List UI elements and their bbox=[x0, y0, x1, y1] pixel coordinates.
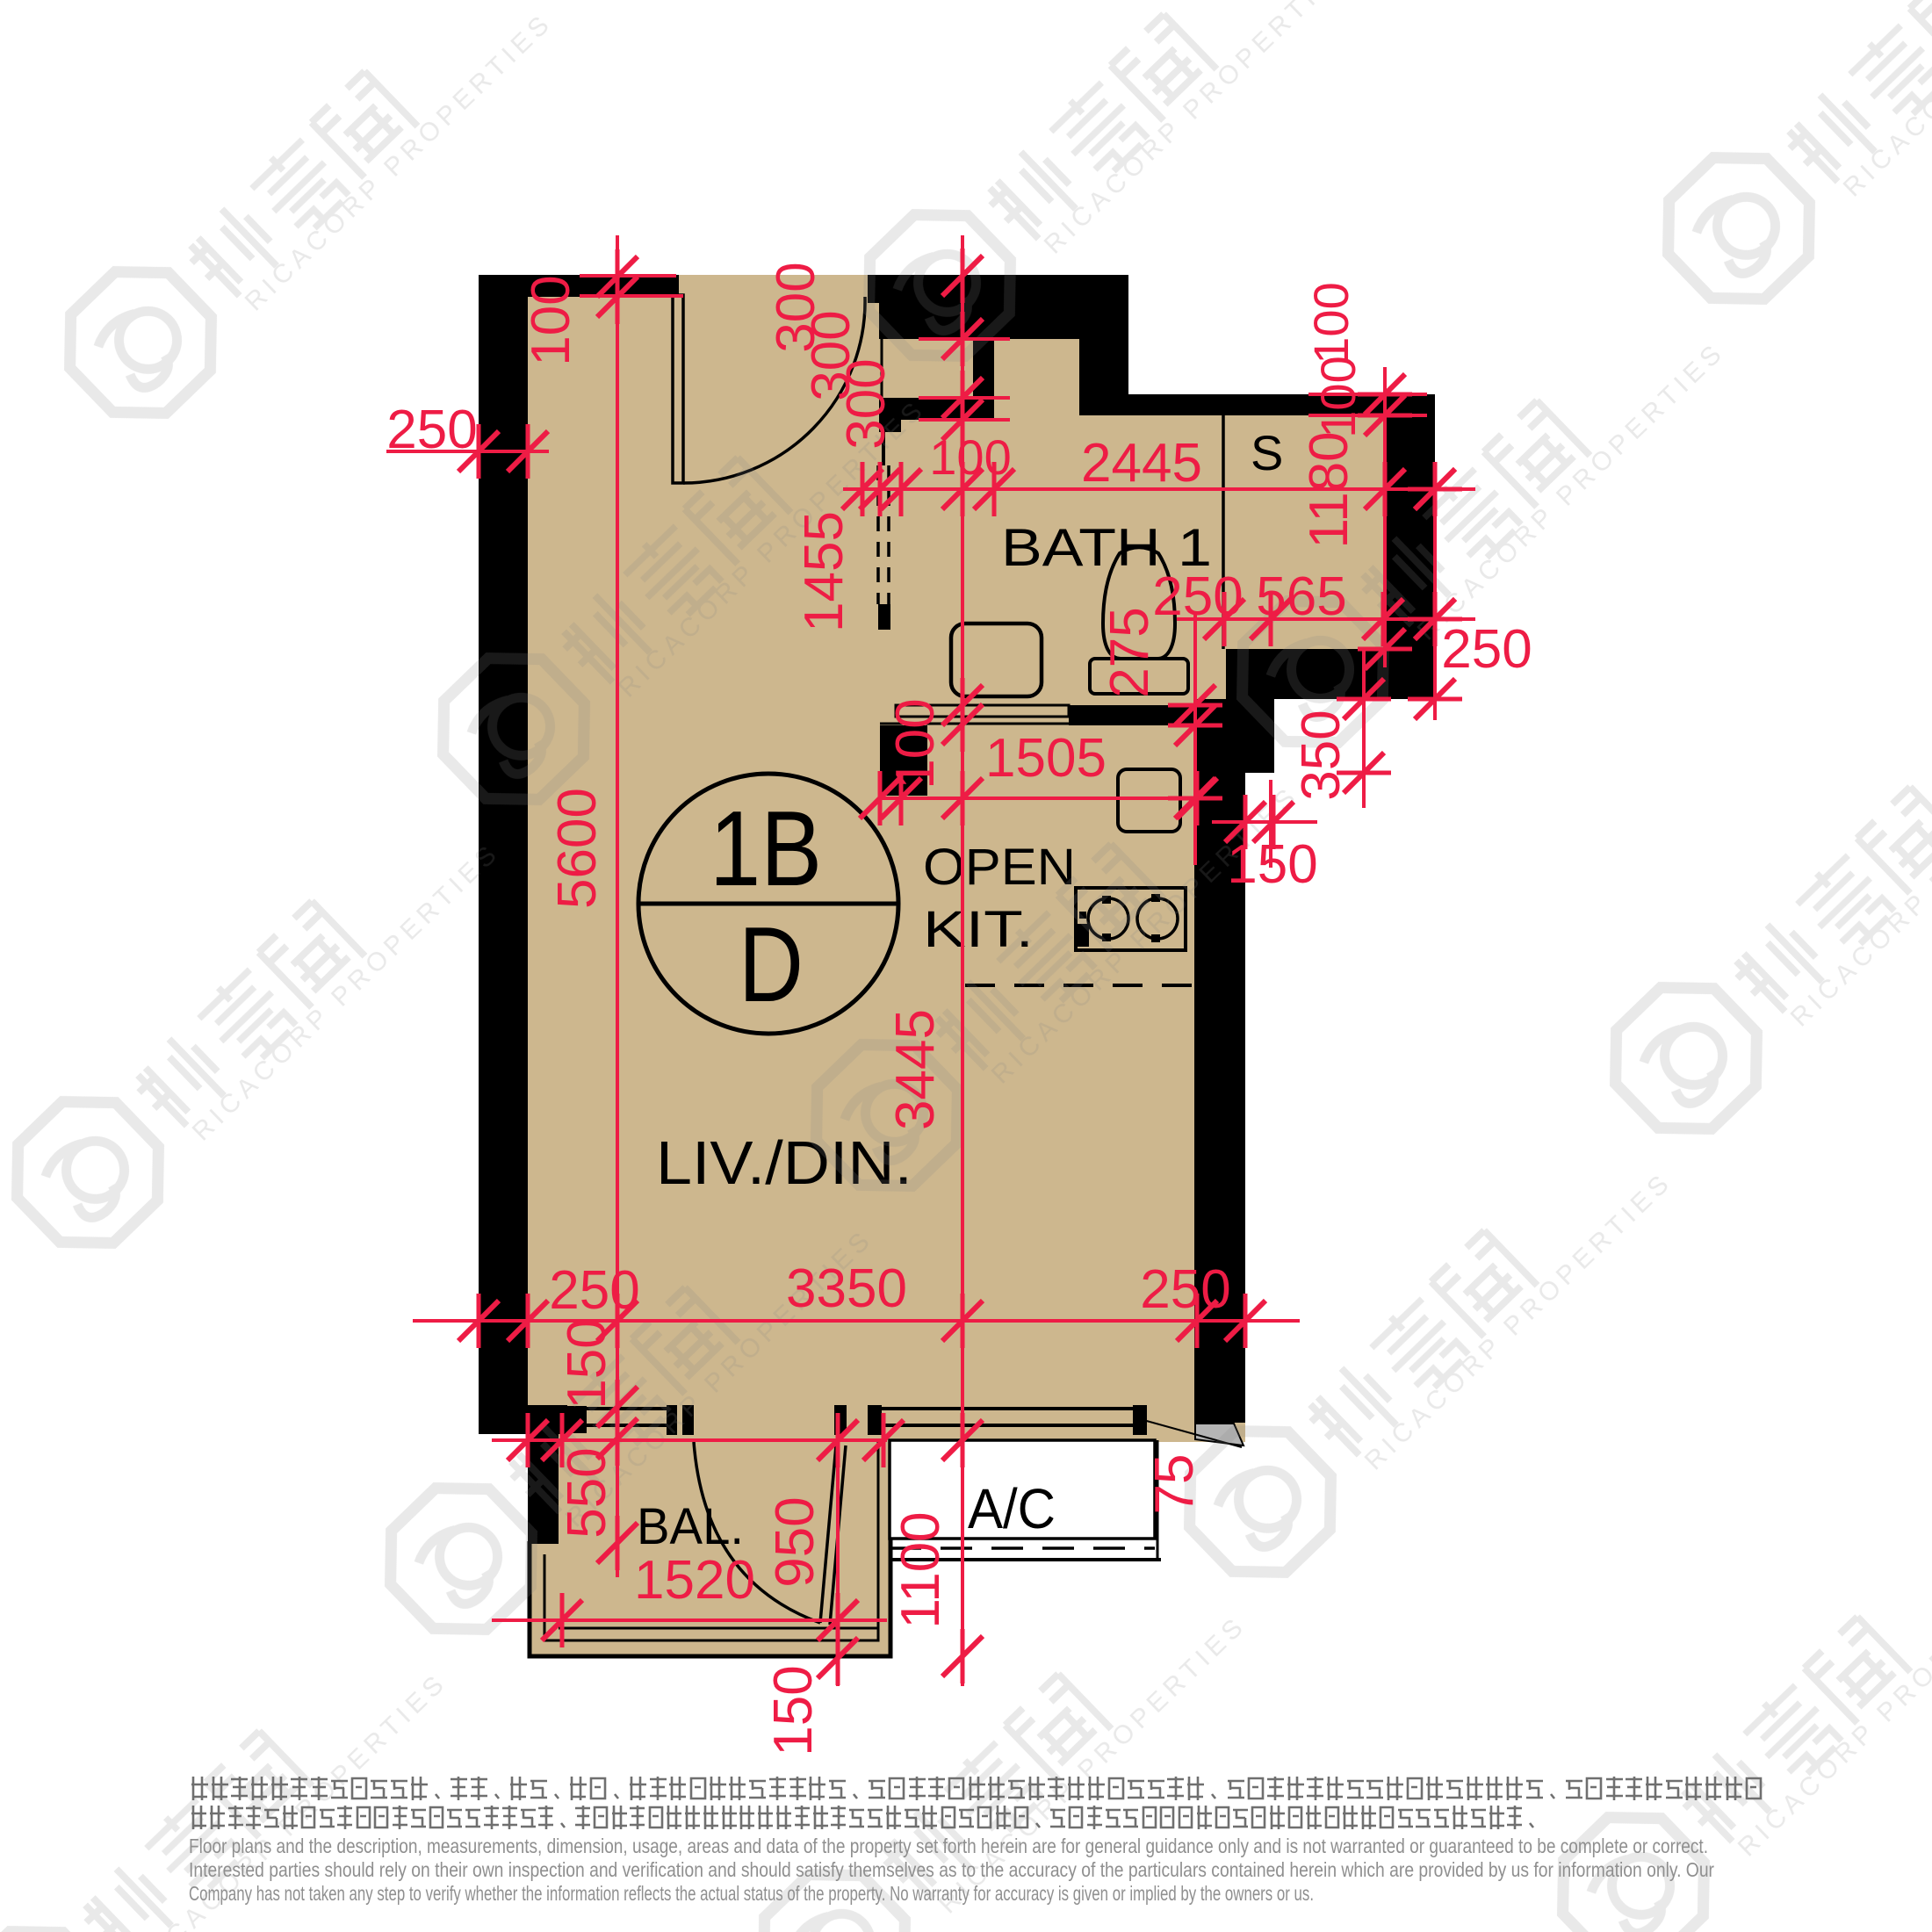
svg-text:3445: 3445 bbox=[885, 1009, 946, 1130]
svg-text:S: S bbox=[1251, 425, 1283, 480]
svg-text:950: 950 bbox=[765, 1496, 825, 1587]
svg-text:BAL.: BAL. bbox=[637, 1498, 744, 1555]
svg-text:RICACORP PROPERTIES: RICACORP PROPERTIES bbox=[1039, 0, 1358, 260]
svg-text:550: 550 bbox=[557, 1447, 617, 1538]
svg-text:250: 250 bbox=[549, 1260, 639, 1321]
svg-text:2445: 2445 bbox=[1081, 433, 1202, 494]
svg-text:250: 250 bbox=[1441, 619, 1532, 680]
svg-text:Interested parties should rely: Interested parties should rely on their … bbox=[189, 1858, 1714, 1881]
svg-text:RICACORP PROPERTIES: RICACORP PROPERTIES bbox=[240, 7, 559, 316]
svg-text:1505: 1505 bbox=[985, 728, 1107, 789]
svg-text:1100: 1100 bbox=[890, 1511, 951, 1628]
svg-text:150: 150 bbox=[763, 1665, 824, 1755]
svg-text:250: 250 bbox=[1152, 566, 1243, 627]
svg-text:300: 300 bbox=[836, 358, 897, 449]
svg-text:Company has not taken any step: Company has not taken any step to verify… bbox=[189, 1882, 1314, 1905]
svg-text:OPEN: OPEN bbox=[923, 839, 1076, 896]
svg-text:1180: 1180 bbox=[1299, 431, 1359, 548]
svg-text:100: 100 bbox=[929, 429, 1011, 485]
svg-text:250: 250 bbox=[1140, 1259, 1230, 1320]
svg-text:275: 275 bbox=[1099, 607, 1160, 697]
svg-text:150: 150 bbox=[557, 1318, 617, 1409]
svg-text:RICACORP PROPERTIES: RICACORP PROPERTIES bbox=[187, 837, 506, 1146]
svg-text:75: 75 bbox=[1144, 1454, 1205, 1515]
svg-text:100: 100 bbox=[1303, 282, 1359, 364]
svg-text:250: 250 bbox=[386, 400, 477, 460]
svg-text:Floor plans and the descriptio: Floor plans and the description, measure… bbox=[189, 1835, 1708, 1857]
svg-text:3350: 3350 bbox=[786, 1258, 907, 1319]
svg-text:100: 100 bbox=[885, 698, 946, 789]
svg-text:565: 565 bbox=[1256, 566, 1346, 627]
svg-text:RICACORP PROPERTIES: RICACORP PROPERTIES bbox=[1785, 723, 1932, 1032]
svg-text:150: 150 bbox=[1227, 834, 1317, 895]
svg-text:A/C: A/C bbox=[968, 1477, 1056, 1540]
svg-text:1455: 1455 bbox=[794, 511, 854, 632]
svg-text:100: 100 bbox=[1310, 356, 1366, 437]
svg-text:RICACORP PROPERTIES: RICACORP PROPERTIES bbox=[1733, 1553, 1932, 1862]
svg-text:1B: 1B bbox=[710, 789, 822, 908]
svg-text:100: 100 bbox=[521, 275, 581, 365]
svg-text:5600: 5600 bbox=[547, 788, 608, 909]
svg-text:KIT.: KIT. bbox=[923, 901, 1034, 958]
svg-text:RICACORP PROPERTIES: RICACORP PROPERTIES bbox=[1359, 1166, 1678, 1475]
svg-text:D: D bbox=[739, 905, 804, 1024]
svg-text:1520: 1520 bbox=[634, 1550, 755, 1611]
svg-text:350: 350 bbox=[1291, 710, 1352, 800]
